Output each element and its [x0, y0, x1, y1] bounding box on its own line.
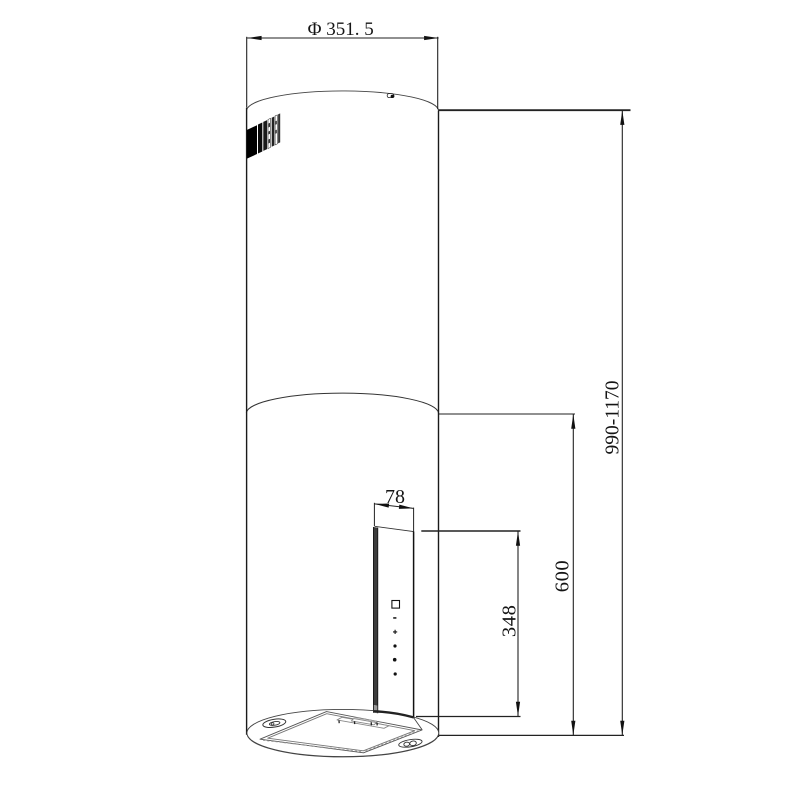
svg-text:600: 600	[552, 560, 574, 593]
svg-text:990-1170: 990-1170	[603, 380, 624, 454]
svg-text:78: 78	[385, 486, 405, 508]
svg-text:Φ 351. 5: Φ 351. 5	[308, 19, 374, 40]
svg-text:348: 348	[499, 605, 521, 638]
